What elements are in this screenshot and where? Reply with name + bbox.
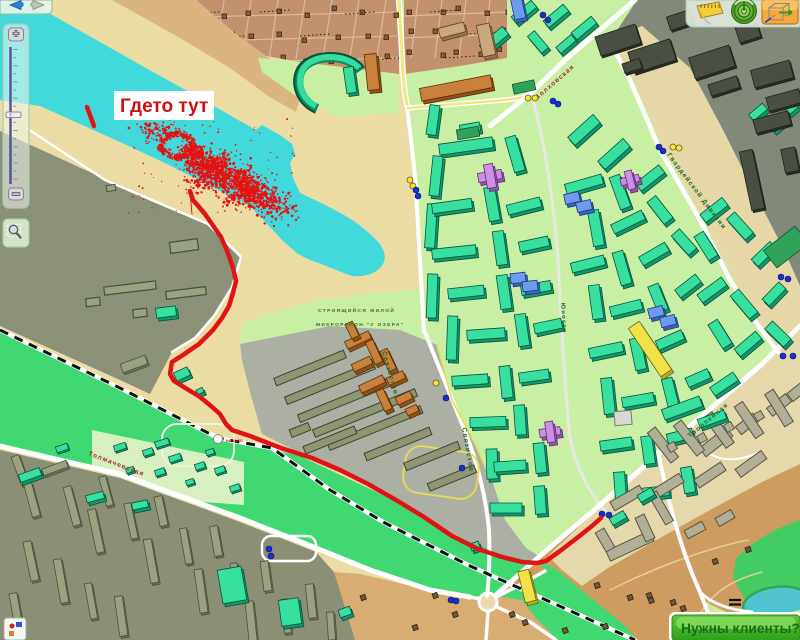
svg-text:Нужны клиенты?: Нужны клиенты? <box>681 621 800 636</box>
svg-text:начало: начало <box>226 438 243 443</box>
svg-text:Гдето тут: Гдето тут <box>120 96 208 117</box>
